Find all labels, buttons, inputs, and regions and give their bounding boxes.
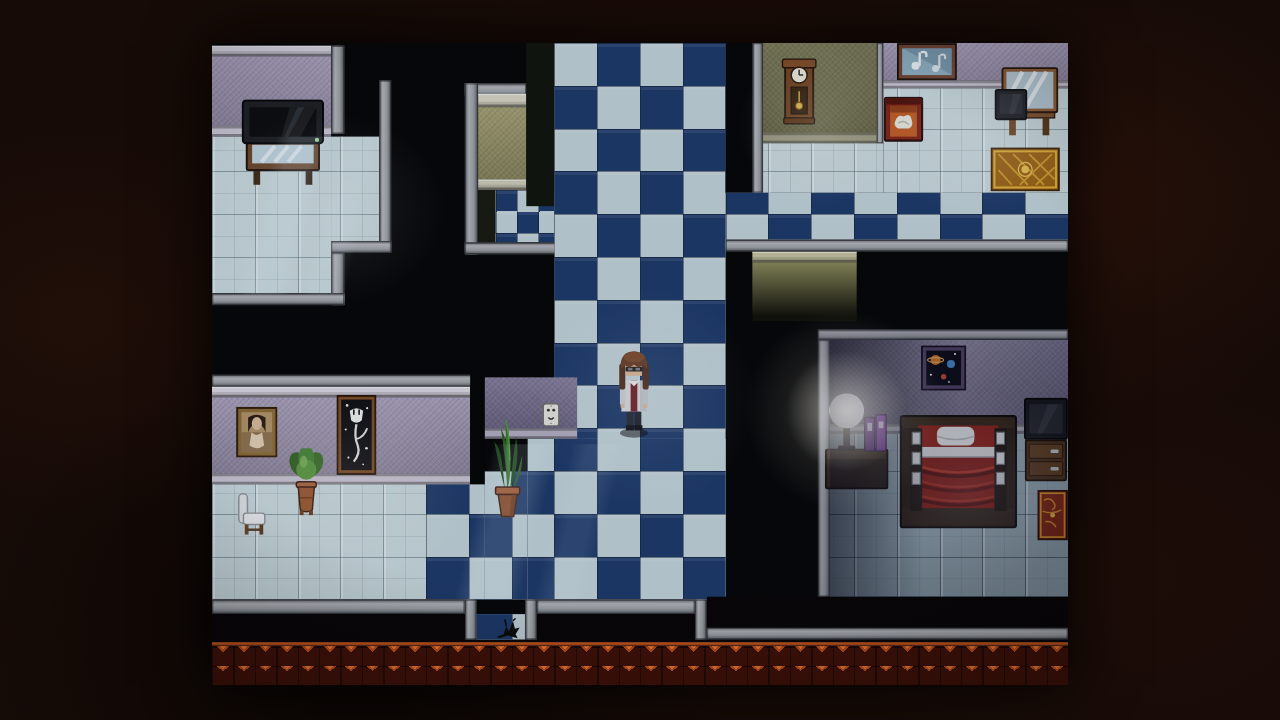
game-world [212, 43, 1068, 685]
game-viewport[interactable] [212, 43, 1068, 685]
screenshot-stage [0, 0, 1280, 720]
layer-lighting [212, 43, 1068, 685]
scene-vignette [212, 43, 1068, 685]
